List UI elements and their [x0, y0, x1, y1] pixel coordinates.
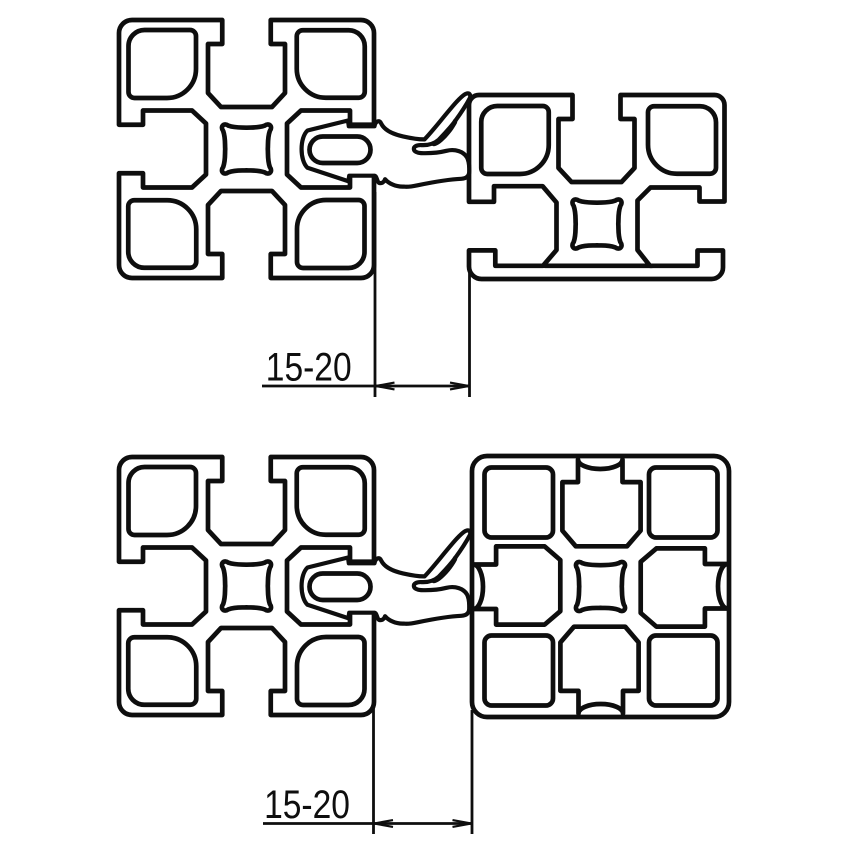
svg-text:15-20: 15-20 [264, 782, 350, 826]
svg-text:15-20: 15-20 [266, 345, 352, 389]
